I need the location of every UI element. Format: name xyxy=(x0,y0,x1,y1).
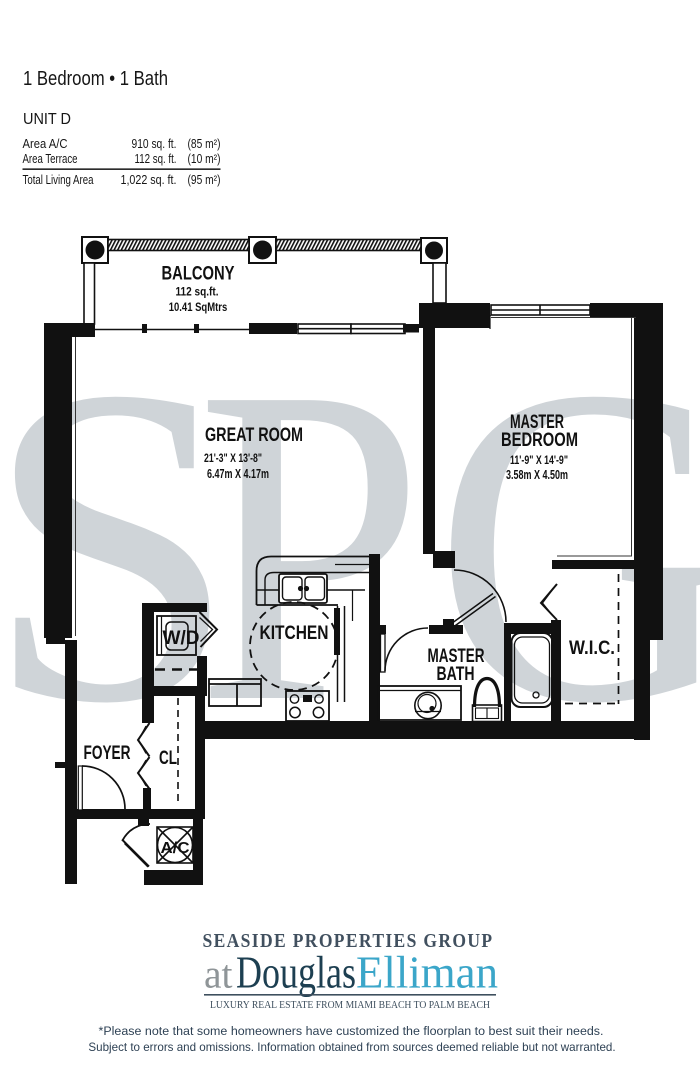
svg-text:1,022 sq. ft.: 1,022 sq. ft. xyxy=(121,173,177,187)
svg-text:CL: CL xyxy=(159,748,177,769)
svg-text:10.41 SqMtrs: 10.41 SqMtrs xyxy=(169,300,228,314)
svg-text:Area A/C: Area A/C xyxy=(23,137,68,151)
svg-text:BALCONY: BALCONY xyxy=(162,263,235,285)
svg-text:W.I.C.: W.I.C. xyxy=(569,638,615,659)
svg-text:GREAT ROOM: GREAT ROOM xyxy=(205,424,303,446)
svg-text:910 sq. ft.: 910 sq. ft. xyxy=(132,137,177,151)
svg-text:112 sq.ft.: 112 sq.ft. xyxy=(176,285,219,299)
svg-text:at: at xyxy=(204,952,233,997)
svg-text:W/D: W/D xyxy=(163,628,200,649)
svg-text:3.58m X 4.50m: 3.58m X 4.50m xyxy=(506,467,568,482)
svg-text:BEDROOM: BEDROOM xyxy=(501,430,578,451)
svg-text:21'-3" X 13'-8": 21'-3" X 13'-8" xyxy=(204,451,262,465)
svg-text:Area Terrace: Area Terrace xyxy=(23,152,78,166)
svg-text:Elliman: Elliman xyxy=(356,947,498,998)
svg-text:BATH: BATH xyxy=(437,663,475,685)
svg-text:112 sq. ft.: 112 sq. ft. xyxy=(135,152,177,166)
svg-text:1 Bedroom • 1 Bath: 1 Bedroom • 1 Bath xyxy=(23,68,168,90)
svg-text:LUXURY REAL ESTATE FROM MIAMI: LUXURY REAL ESTATE FROM MIAMI BEACH TO P… xyxy=(210,1000,490,1011)
svg-text:6.47m X 4.17m: 6.47m X 4.17m xyxy=(207,466,269,481)
svg-text:Subject to errors and omission: Subject to errors and omissions. Informa… xyxy=(88,1041,615,1054)
svg-text:Total Living Area: Total Living Area xyxy=(23,173,94,187)
svg-text:KITCHEN: KITCHEN xyxy=(260,622,329,644)
svg-text:FOYER: FOYER xyxy=(84,742,131,764)
svg-text:UNIT D: UNIT D xyxy=(23,111,71,128)
svg-text:(85 m²): (85 m²) xyxy=(188,137,221,151)
svg-text:(95 m²): (95 m²) xyxy=(188,173,221,187)
svg-text:(10 m²): (10 m²) xyxy=(188,152,221,166)
svg-text:A/C: A/C xyxy=(161,840,190,857)
svg-text:Douglas: Douglas xyxy=(236,947,356,998)
svg-text:11'-9" X 14'-9": 11'-9" X 14'-9" xyxy=(510,453,568,467)
svg-text:*Please note that some homeown: *Please note that some homeowners have c… xyxy=(99,1024,604,1038)
